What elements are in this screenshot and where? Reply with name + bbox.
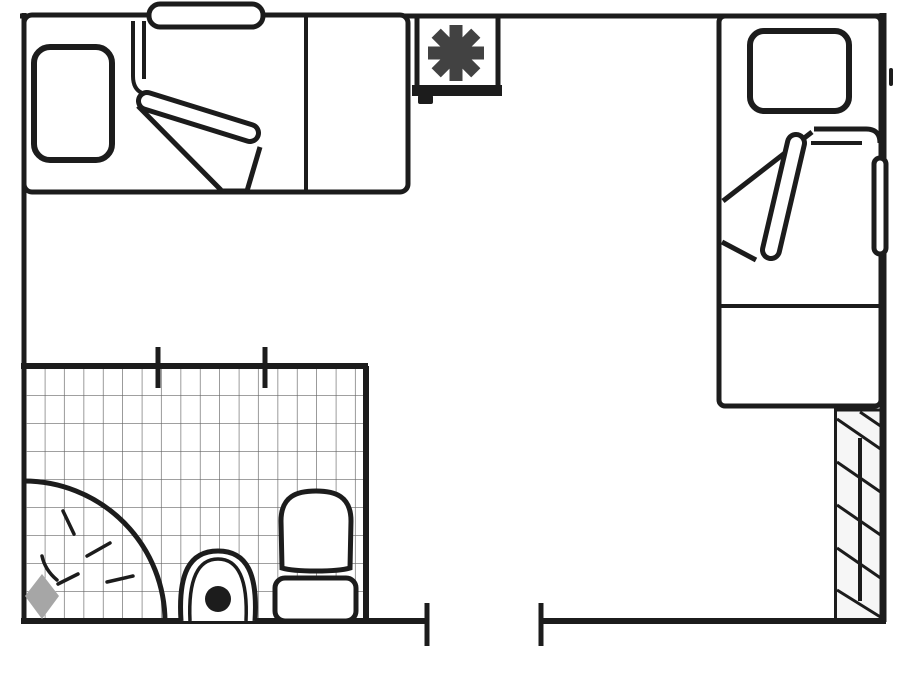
pillow [34, 47, 112, 160]
stair-strip [836, 410, 884, 621]
heater-tab [418, 95, 433, 104]
pillow [750, 31, 849, 111]
sink-drain [205, 586, 231, 612]
bed-upper-left [24, 4, 408, 192]
bottom-doorway [427, 603, 541, 646]
toilet-tank [275, 578, 356, 621]
bolster-cushion [149, 4, 263, 27]
asterisk-icon [428, 25, 484, 81]
heater-base-bar [412, 85, 502, 96]
toilet-bowl [281, 491, 351, 571]
bed-right [719, 16, 891, 406]
floor-plan [0, 0, 900, 693]
bathroom [21, 347, 368, 622]
heater-unit [412, 16, 502, 104]
